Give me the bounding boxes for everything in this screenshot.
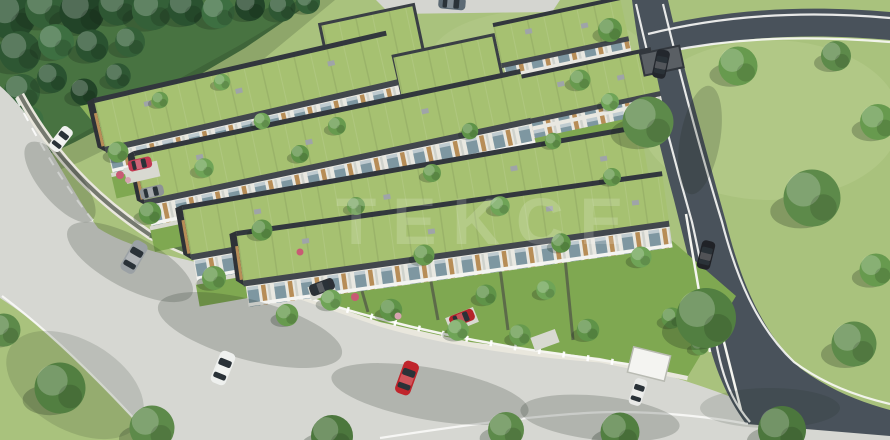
- flower-bush: [125, 177, 131, 183]
- aerial-render-scene: TEKCE: [0, 0, 890, 440]
- flower-bush: [297, 249, 304, 256]
- scene-svg: TEKCE: [0, 0, 890, 440]
- watermark-text: TEKCE: [336, 184, 640, 258]
- flower-bush: [395, 313, 402, 320]
- flower-bush: [116, 171, 124, 179]
- flower-bush: [351, 293, 359, 301]
